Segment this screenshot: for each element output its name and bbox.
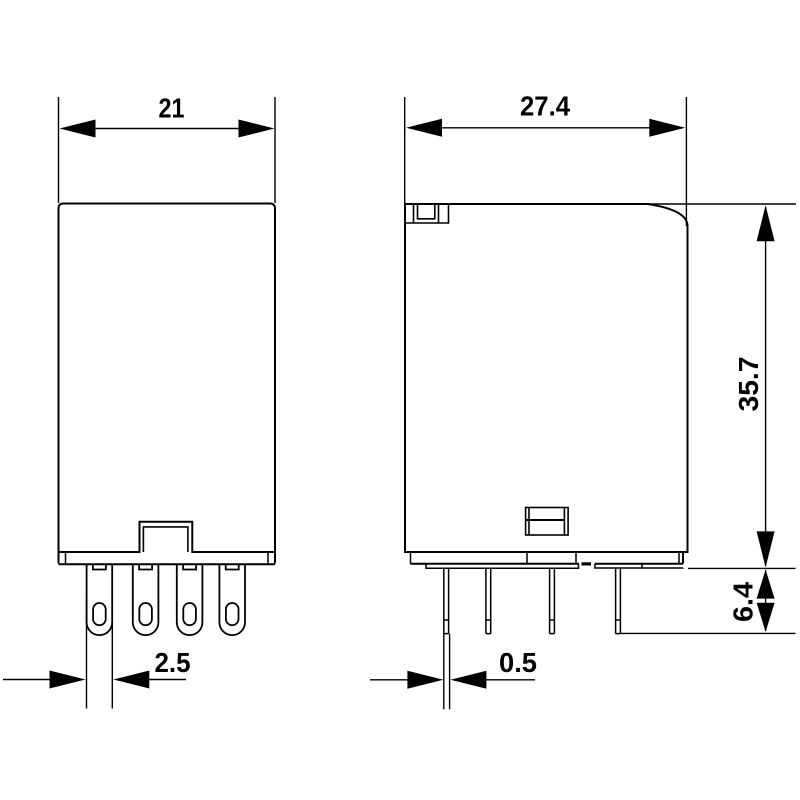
svg-text:35.7: 35.7 <box>733 357 764 412</box>
svg-text:6.4: 6.4 <box>728 582 759 622</box>
svg-text:27.4: 27.4 <box>520 91 570 122</box>
svg-text:21: 21 <box>159 93 185 124</box>
svg-text:2.5: 2.5 <box>155 647 191 678</box>
svg-text:0.5: 0.5 <box>499 647 537 678</box>
